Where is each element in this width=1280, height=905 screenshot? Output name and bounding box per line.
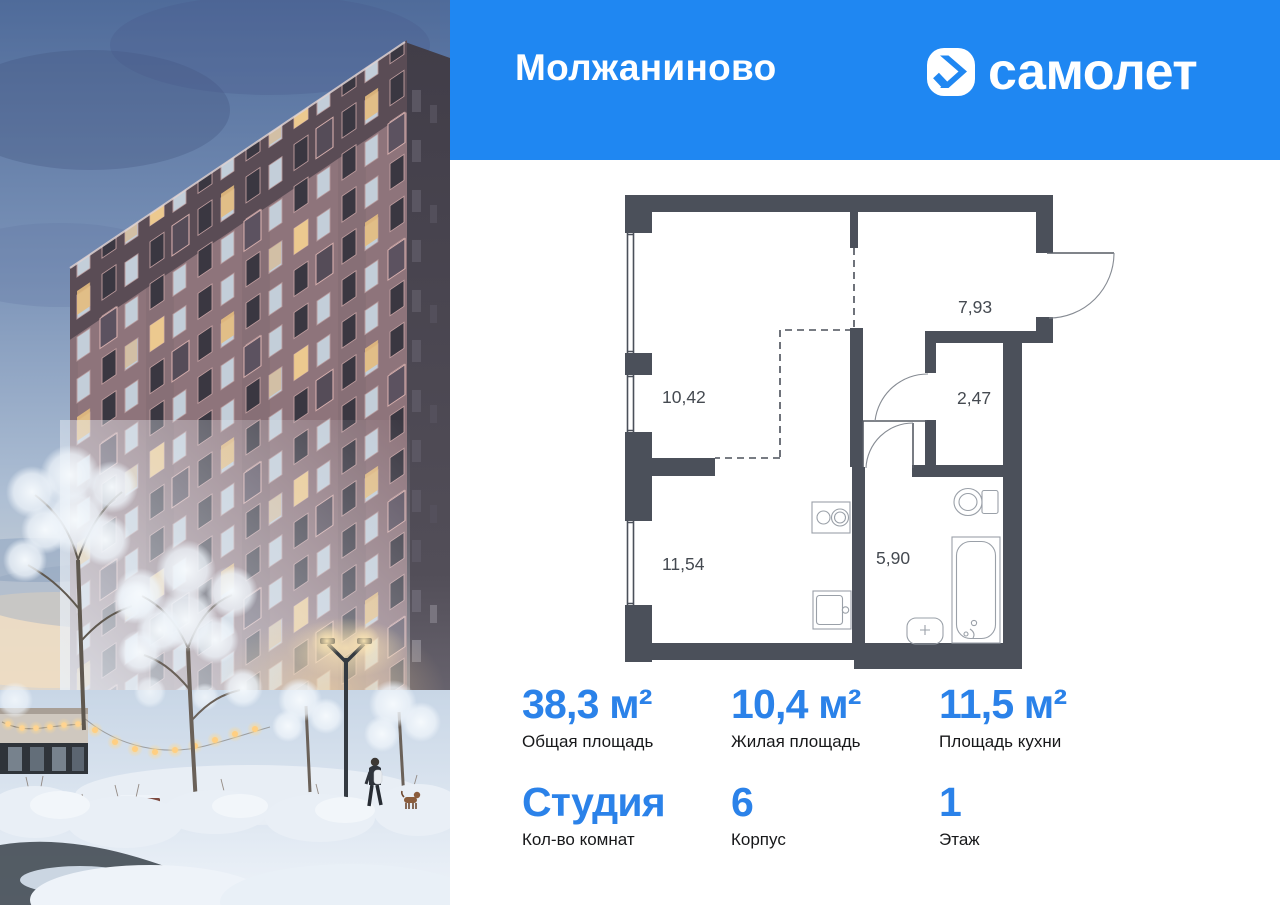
listing-card: Молжаниново самолет xyxy=(0,0,1280,905)
stat-label: Этаж xyxy=(939,830,980,850)
stat-kitchen-area: 11,5 м² Площадь кухни xyxy=(939,684,1066,752)
samolet-logo: самолет xyxy=(927,48,1197,96)
building-photo xyxy=(0,0,450,905)
bathtub-icon xyxy=(952,537,1000,643)
project-title: Молжаниново xyxy=(515,46,776,90)
room-area-label: 5,90 xyxy=(876,548,910,568)
stat-value: 1 xyxy=(939,782,980,823)
room-area-label: 7,93 xyxy=(958,297,992,317)
header-banner: Молжаниново самолет xyxy=(450,0,1280,160)
room-area-label: 11,54 xyxy=(662,554,705,574)
listing-content: Молжаниново самолет xyxy=(450,0,1280,905)
room-area-label: 10,42 xyxy=(662,387,706,407)
door-arcs xyxy=(866,253,1114,468)
stat-value: 6 xyxy=(731,782,786,823)
stat-value: 10,4 м² xyxy=(731,684,861,725)
kitchen-niche-dashed-boundary xyxy=(715,248,854,458)
stat-value: 11,5 м² xyxy=(939,684,1066,725)
floor-plan: 10,42 7,93 2,47 11,54 5,90 xyxy=(615,185,1125,675)
plan-walls xyxy=(625,195,1053,669)
building-photo-art xyxy=(0,0,450,905)
window-icon xyxy=(627,233,634,605)
stat-building: 6 Корпус xyxy=(731,782,786,850)
samolet-chevron-icon xyxy=(927,48,975,96)
samolet-logo-text: самолет xyxy=(988,49,1197,95)
stat-label: Общая площадь xyxy=(522,732,653,752)
stat-rooms: Студия Кол-во комнат xyxy=(522,782,665,850)
toilet-icon xyxy=(954,489,998,516)
stat-floor: 1 Этаж xyxy=(939,782,980,850)
stat-value: 38,3 м² xyxy=(522,684,653,725)
stat-value: Студия xyxy=(522,782,665,823)
cooktop-icon xyxy=(812,502,850,533)
stat-label: Площадь кухни xyxy=(939,732,1066,752)
stat-living-area: 10,4 м² Жилая площадь xyxy=(731,684,861,752)
kitchen-sink-icon xyxy=(813,591,851,629)
stat-label: Корпус xyxy=(731,830,786,850)
stat-total-area: 38,3 м² Общая площадь xyxy=(522,684,653,752)
stat-label: Кол-во комнат xyxy=(522,830,665,850)
bathroom-sink-icon xyxy=(907,618,943,644)
room-area-label: 2,47 xyxy=(957,388,991,408)
stat-label: Жилая площадь xyxy=(731,732,861,752)
door-leaves xyxy=(863,253,1114,468)
